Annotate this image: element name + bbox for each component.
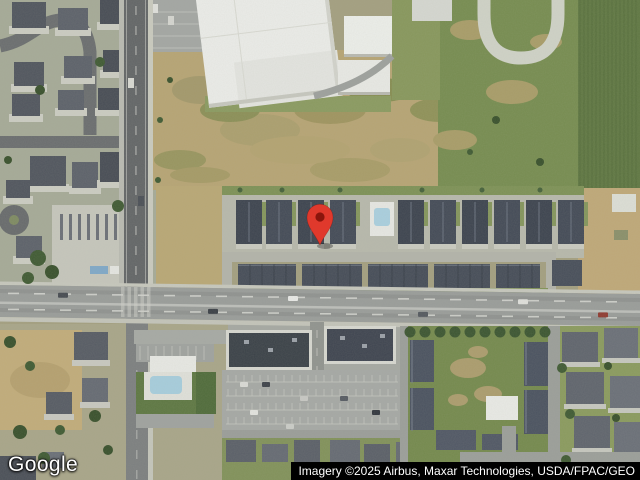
satellite-imagery-canvas (0, 0, 640, 480)
imagery-attribution: Imagery ©2025 Airbus, Maxar Technologies… (291, 462, 640, 480)
map-viewport[interactable]: Google Imagery ©2025 Airbus, Maxar Techn… (0, 0, 640, 480)
pin-dot (315, 212, 324, 221)
google-logo-watermark[interactable]: Google (8, 453, 78, 477)
